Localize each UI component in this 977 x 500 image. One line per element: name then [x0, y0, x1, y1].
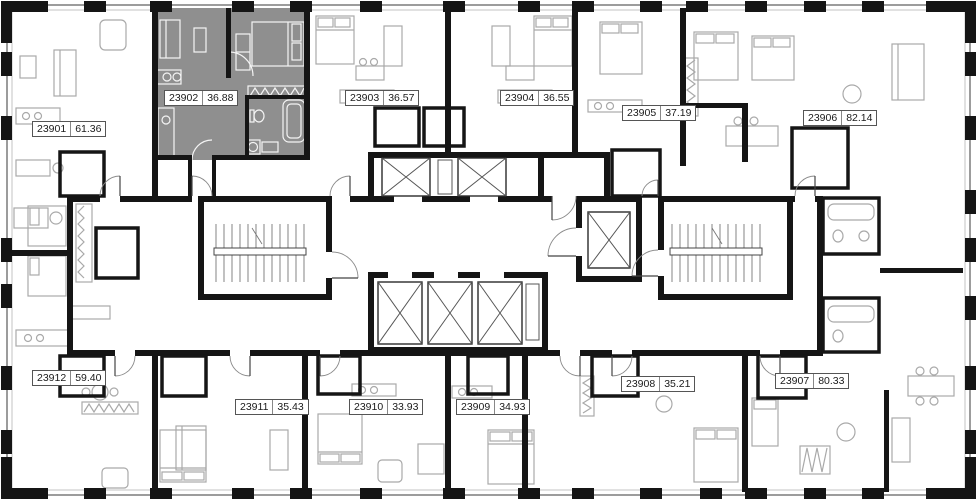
unit-area: 82.14	[842, 111, 876, 125]
unit-area: 59.40	[71, 371, 105, 385]
unit-area: 80.33	[814, 374, 848, 388]
unit-number: 23909	[457, 400, 495, 414]
stairwell-right	[670, 224, 762, 282]
unit-area: 37.19	[661, 106, 695, 120]
facade	[7, 5, 970, 495]
unit-area: 33.93	[388, 400, 422, 414]
elevator-core-top	[382, 158, 506, 196]
unit-area: 36.55	[539, 91, 573, 105]
unit-number: 23901	[33, 122, 71, 136]
walls-layer	[1, 1, 976, 499]
unit-number: 23910	[350, 400, 388, 414]
unit-area: 35.21	[660, 377, 694, 391]
unit-number: 23912	[33, 371, 71, 385]
elevator-right	[588, 212, 630, 268]
unit-area: 35.43	[273, 400, 307, 414]
unit-number: 23905	[623, 106, 661, 120]
unit-label-23904[interactable]: 2390436.55	[500, 90, 574, 106]
unit-label-23901[interactable]: 2390161.36	[32, 121, 106, 137]
unit-label-23912[interactable]: 2391259.40	[32, 370, 106, 386]
unit-label-23907[interactable]: 2390780.33	[775, 373, 849, 389]
floor-plan: 2390161.362390236.882390336.572390436.55…	[0, 0, 977, 500]
unit-number: 23907	[776, 374, 814, 388]
unit-label-23910[interactable]: 2391033.93	[349, 399, 423, 415]
unit-number: 23906	[804, 111, 842, 125]
unit-label-23911[interactable]: 2391135.43	[235, 399, 309, 415]
doors-layer	[100, 176, 815, 376]
unit-number: 23903	[346, 91, 384, 105]
unit-label-23906[interactable]: 2390682.14	[803, 110, 877, 126]
unit-number: 23902	[165, 91, 203, 105]
unit-number: 23904	[501, 91, 539, 105]
elevator-core-bottom	[378, 282, 539, 344]
unit-area: 61.36	[71, 122, 105, 136]
stairwell-left	[214, 224, 306, 282]
unit-number: 23908	[622, 377, 660, 391]
unit-area: 36.57	[384, 91, 418, 105]
unit-label-23902[interactable]: 2390236.88	[164, 90, 238, 106]
unit-area: 34.93	[495, 400, 529, 414]
unit-area: 36.88	[203, 91, 237, 105]
unit-label-23903[interactable]: 2390336.57	[345, 90, 419, 106]
unit-number: 23911	[236, 400, 273, 414]
unit-label-23908[interactable]: 2390835.21	[621, 376, 695, 392]
unit-label-23905[interactable]: 2390537.19	[622, 105, 696, 121]
floor-plan-drawing	[0, 0, 977, 500]
unit-label-23909[interactable]: 2390934.93	[456, 399, 530, 415]
